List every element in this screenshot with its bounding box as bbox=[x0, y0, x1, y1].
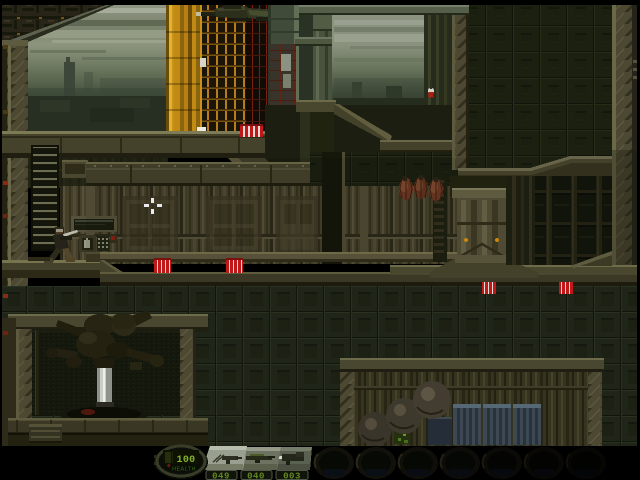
svg-text:040: 040 bbox=[247, 472, 265, 480]
svg-text:003: 003 bbox=[283, 472, 301, 480]
svg-text:049: 049 bbox=[212, 472, 230, 480]
svg-text:100: 100 bbox=[177, 455, 196, 466]
svg-text:HEALTH: HEALTH bbox=[172, 467, 196, 473]
